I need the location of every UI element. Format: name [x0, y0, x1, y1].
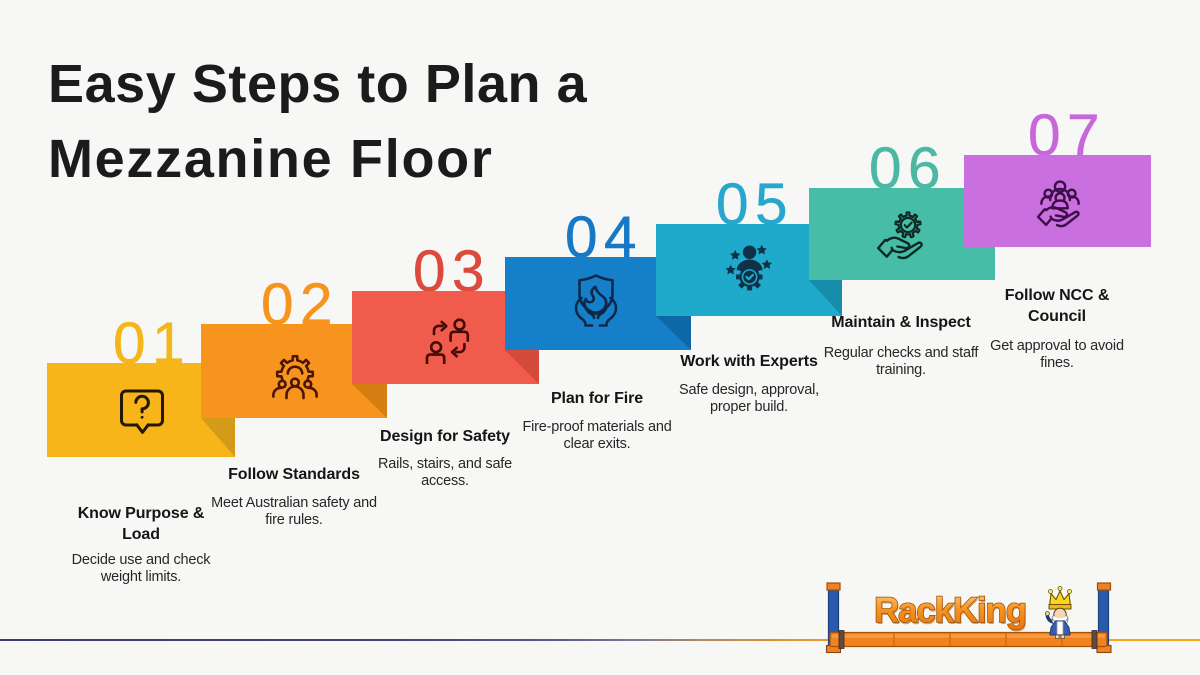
svg-text:RackKing: RackKing: [874, 591, 1026, 630]
